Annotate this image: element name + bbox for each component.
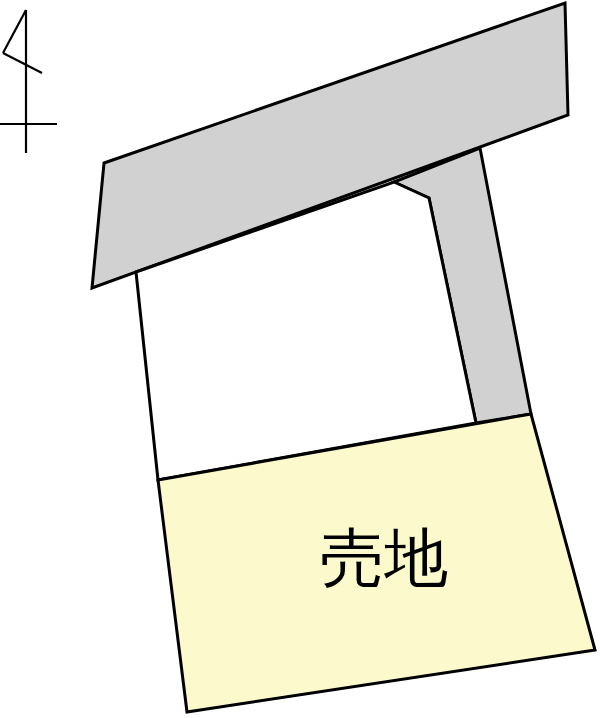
north-arrow-icon [0, 10, 57, 153]
site-plan-svg: 売地 [0, 0, 600, 718]
site-plan: 売地 [0, 0, 600, 718]
for-sale-label: 売地 [320, 521, 448, 595]
north-arrow-line [3, 10, 26, 53]
north-arrow-line [3, 53, 42, 73]
